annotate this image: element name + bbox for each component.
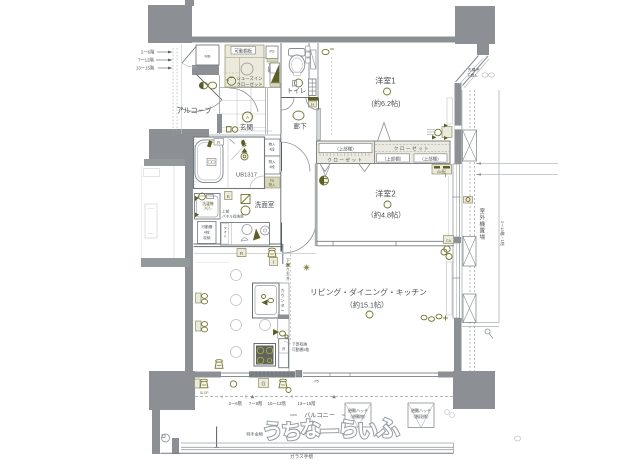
svg-text:パン: パン [204,206,212,211]
svg-text:AV配: AV配 [437,169,446,174]
svg-text:P5: P5 [315,380,319,384]
svg-text:天: 天 [286,273,290,277]
svg-text:可動棚: 可動棚 [201,224,212,229]
svg-text:（約4.8帖）: （約4.8帖） [367,211,406,220]
svg-text:H: H [311,102,314,107]
svg-text:先構.不: 先構.不 [468,67,480,72]
svg-text:（約15.1帖）: （約15.1帖） [346,301,389,310]
svg-text:トイレ: トイレ [287,88,307,95]
svg-text:13ー15階: 13ー15階 [297,400,316,407]
svg-text:洗濯機: 洗濯機 [202,201,214,206]
svg-text:13ー15階: 13ー15階 [136,65,155,72]
svg-text:物入: 物入 [269,159,276,164]
svg-text:外: 外 [480,214,486,222]
svg-text:クローゼット: クローゼット [236,81,262,88]
svg-text:（階段側）: （階段側） [411,413,431,419]
svg-text:が: が [286,263,290,268]
svg-text:洋室2: 洋室2 [375,189,396,199]
svg-text:可動棚板: 可動棚板 [235,48,253,55]
svg-text:下: 下 [286,259,290,263]
svg-text:アルコーブ: アルコーブ [176,106,211,115]
svg-text:冷: 冷 [282,346,286,351]
svg-text:2ー6階: 2ー6階 [141,49,155,56]
svg-text:室: 室 [480,207,486,215]
svg-text:物入: 物入 [269,182,276,187]
svg-text:MB: MB [205,54,211,59]
svg-text:（上部棚）: （上部棚） [335,145,357,152]
svg-text:パネル収納庫: パネル収納庫 [222,214,244,219]
svg-text:置: 置 [480,228,486,235]
svg-text:4段: 4段 [269,164,275,169]
svg-text:箱: 箱 [268,69,271,73]
svg-text:下部収納: 下部収納 [292,342,307,347]
svg-text:10ー12階: 10ー12階 [268,400,287,407]
svg-text:G: G [262,382,266,388]
svg-text:UB1317: UB1317 [236,173,257,179]
svg-text:機: 機 [480,220,486,228]
svg-text:R: R [240,251,244,257]
svg-text:廊下: 廊下 [293,122,307,131]
svg-text:CA: CA [446,238,452,243]
svg-text:PS: PS [269,50,275,54]
svg-text:井: 井 [286,276,290,281]
svg-text:洋室1: 洋室1 [375,76,396,86]
svg-text:可動棚3枚: 可動棚3枚 [292,347,310,352]
svg-text:R: R [217,140,220,145]
svg-text:7ー9階: 7ー9階 [249,400,263,407]
svg-text:特手金物: 特手金物 [246,431,263,438]
svg-text:2ー6階: 2ー6階 [229,400,243,407]
svg-text:クローゼット: クローゼット [327,157,364,164]
svg-text:避難ハッチ: 避難ハッチ [411,407,431,413]
svg-text:上部: 上部 [222,209,230,214]
svg-text:SLOP: SLOP [200,391,209,395]
svg-text:り: り [286,267,290,272]
svg-text:クローゼット: クローゼット [394,145,431,152]
svg-text:玄関: 玄関 [240,123,254,132]
svg-text:避難ハッチ: 避難ハッチ [348,407,368,413]
svg-text:場: 場 [480,233,486,241]
svg-text:収納: 収納 [203,235,211,240]
svg-text:物入: 物入 [269,142,276,147]
svg-text:（上部棚）: （上部棚） [420,155,442,162]
svg-text:7ー12階: 7ー12階 [138,57,154,64]
svg-text:（上部棚）: （上部棚） [382,155,404,162]
svg-text:4枚: 4枚 [204,230,210,235]
svg-text:ー: ー [281,308,285,313]
svg-text:2ー15階・1帖: 2ー15階・1帖 [500,221,506,246]
svg-text:ガラス手摺: ガラス手摺 [290,453,313,460]
svg-text:4段: 4段 [269,147,275,152]
svg-text:ル: ル [224,234,227,238]
svg-text:下請ム: 下請ム [467,73,478,78]
svg-text:リビング・ダイニング・キッチン: リビング・ダイニング・キッチン [310,287,427,297]
svg-text:洗面室: 洗面室 [255,200,275,209]
svg-text:(約6.2帖): (約6.2帖) [371,99,400,108]
svg-text:シューズイン: シューズイン [236,75,263,82]
